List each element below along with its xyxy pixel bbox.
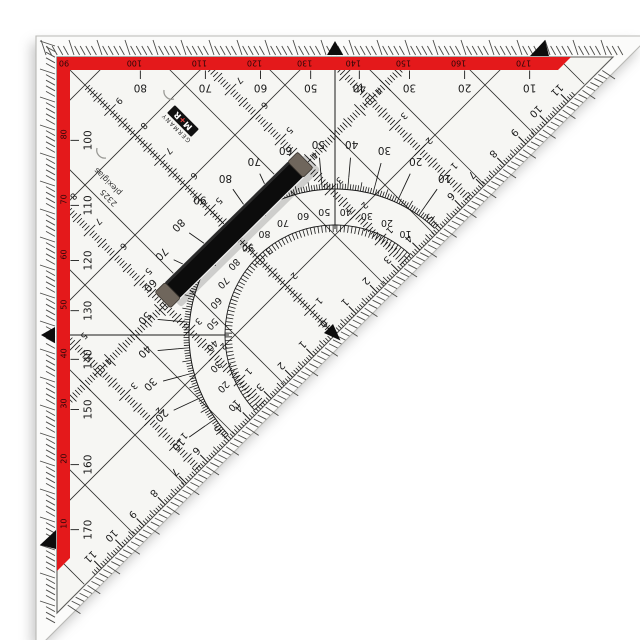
scale-label: 60: [59, 249, 68, 259]
scale-label: 80: [59, 129, 68, 139]
scale-label: 10: [523, 81, 536, 93]
scale-label: 100: [127, 59, 142, 68]
scale-label: 70: [59, 194, 68, 204]
scale-label: 30: [378, 144, 391, 156]
scale-label: 160: [83, 455, 95, 475]
scale-label: 150: [83, 399, 95, 419]
scale-label: 130: [83, 301, 95, 321]
scale-label: 40: [59, 348, 68, 358]
scale-label: 110: [192, 59, 207, 68]
scale-label: 50: [318, 206, 330, 217]
scale-label: 160: [451, 59, 466, 68]
scale-label: 20: [458, 81, 471, 93]
scale-label: 140: [346, 59, 361, 68]
scale-label: 70: [248, 155, 261, 167]
scale-label: 30: [59, 398, 68, 408]
scale-label: 60: [279, 144, 292, 156]
scale-label: 90: [59, 59, 69, 68]
scale-label: 90: [193, 193, 206, 205]
scale-label: 70: [277, 217, 289, 228]
scale-label: 50: [304, 81, 317, 93]
scale-label: 170: [83, 520, 95, 540]
scale-label: 80: [134, 81, 147, 93]
scale-label: 170: [516, 59, 531, 68]
scale-label: 40: [353, 81, 366, 93]
scale-label: 80: [219, 172, 232, 184]
scale-label: 20: [409, 155, 422, 167]
scale-label: 70: [199, 81, 212, 93]
scale-label: 40: [340, 206, 352, 217]
scale-label: 140: [83, 349, 95, 369]
scale-label: 30: [403, 81, 416, 93]
scale-label: 50: [59, 300, 68, 310]
scale-label: 60: [297, 210, 309, 221]
scale-label: 20: [381, 217, 393, 228]
scale-label: 10: [438, 172, 451, 184]
set-square-scene: 1234567891234567812345678123451234510102…: [0, 0, 640, 640]
scale-label: 40: [345, 138, 358, 150]
scale-label: 150: [396, 59, 411, 68]
geodreieck-product-photo: 1234567891234567812345678123451234510102…: [0, 0, 640, 640]
scale-label: 20: [59, 454, 68, 464]
scale-label: 110: [83, 195, 95, 215]
scale-label: 100: [83, 130, 95, 150]
scale-label: 60: [254, 81, 267, 93]
scale-label: 120: [83, 250, 95, 270]
scale-label: 80: [258, 228, 270, 239]
scale-label: 50: [312, 138, 325, 150]
scale-label: 10: [59, 519, 68, 529]
scale-label: 130: [297, 59, 312, 68]
scale-label: 120: [247, 59, 262, 68]
scale-label: 30: [361, 210, 373, 221]
